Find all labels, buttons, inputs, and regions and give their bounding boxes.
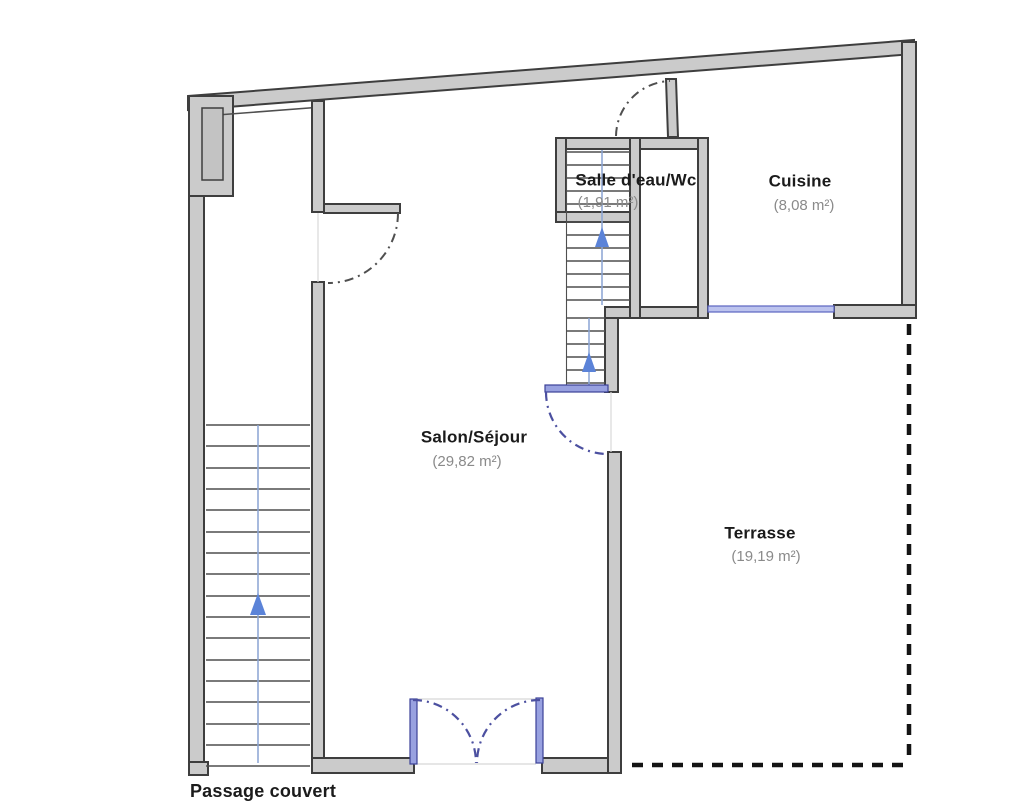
kitchen-bottom-wall <box>834 305 916 318</box>
french-door-left-leaf <box>410 699 417 764</box>
left-wall <box>189 96 204 775</box>
room-label-salle-eau: Salle d'eau/Wc <box>575 172 696 191</box>
stair-up-arrow <box>595 227 609 247</box>
wall-pillar <box>202 108 223 180</box>
corridor-wall-upper <box>312 101 324 212</box>
salon-east-wall <box>608 452 621 773</box>
french-door-left-arc <box>413 700 476 763</box>
stair-shaft-wall <box>630 138 640 318</box>
room-area-salle-eau: (1,91 m²) <box>578 195 639 212</box>
room-area-cuisine: (8,08 m²) <box>774 198 835 215</box>
room-label-cuisine: Cuisine <box>769 173 832 192</box>
main-staircase <box>206 425 310 766</box>
bathroom-left-wall <box>556 138 566 222</box>
right-wall <box>902 42 916 318</box>
exterior-walls <box>188 40 916 775</box>
french-door-right-arc <box>477 700 540 763</box>
salon-door-leaf <box>324 204 400 213</box>
room-area-salon: (29,82 m²) <box>432 454 501 471</box>
french-door-right-leaf <box>536 698 543 763</box>
left-wall-foot <box>189 762 208 775</box>
floor-plan-drawing <box>0 0 1024 812</box>
stair-up-arrow <box>582 352 596 372</box>
corridor-wall-lower <box>312 282 324 773</box>
floor-plan: Salle d'eau/Wc (1,91 m²) Cuisine (8,08 m… <box>0 0 1024 812</box>
room-label-salon: Salon/Séjour <box>421 429 527 448</box>
room-area-terrasse: (19,19 m²) <box>731 549 800 566</box>
room-label-passage-couvert: Passage couvert <box>190 782 336 802</box>
bathroom-bottom-wall <box>556 212 640 222</box>
kitchen-left-wall <box>698 138 708 318</box>
entrance-door-swing-arc <box>616 81 670 136</box>
wall-under-wc-room <box>605 307 708 318</box>
stair-door-leaf <box>545 385 608 392</box>
entrance-door <box>616 79 678 137</box>
stair-door-swing-arc <box>546 392 608 454</box>
bottom-wall-right <box>542 758 610 773</box>
terrace-boundary <box>632 324 909 765</box>
top-wall <box>188 40 914 110</box>
room-label-terrasse: Terrasse <box>724 525 795 544</box>
stair-east-wall <box>605 307 618 392</box>
stair-door <box>545 385 608 454</box>
kitchen-window <box>708 306 834 312</box>
salon-door-swing-arc <box>328 213 398 283</box>
salon-door <box>324 204 400 283</box>
french-doors <box>410 698 543 764</box>
entrance-door-leaf <box>666 79 678 137</box>
bottom-wall-left <box>312 758 414 773</box>
